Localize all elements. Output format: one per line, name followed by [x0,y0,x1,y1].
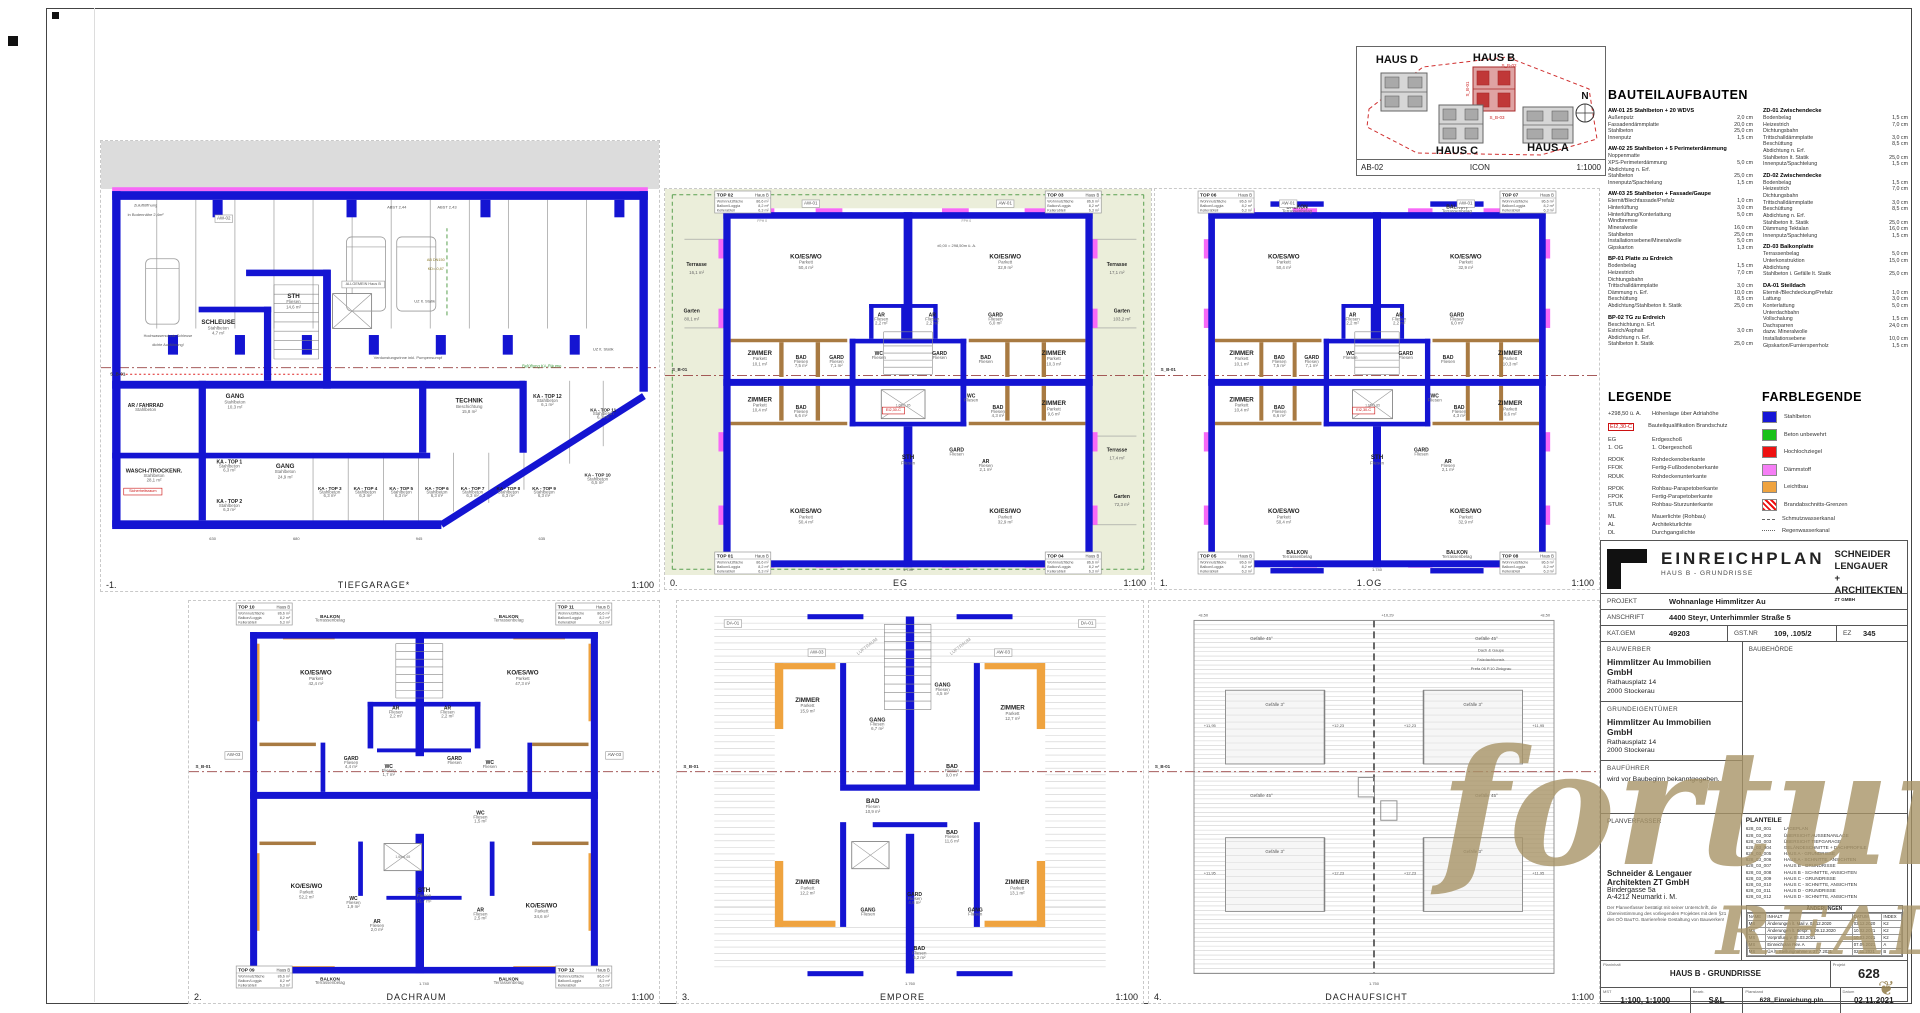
bauteil-section-BP-02: BP-02 TG zu ErdreichBeschichtung n. Erf.… [1608,315,1753,348]
plan-annotation: S_B-01 [1155,764,1171,769]
svg-text:Terrassenbelag: Terrassenbelag [1442,208,1473,213]
svg-text:4,4 m²: 4,4 m² [345,764,358,769]
plan-scale: 1:100 [631,992,654,1002]
legende-row: RDOKRohdeckenoberkante [1608,457,1758,463]
svg-text:6,3 m²: 6,3 m² [1242,208,1253,212]
svg-text:Terrassenbelag: Terrassenbelag [1282,208,1313,213]
plan-number: 0. [670,578,678,588]
svg-text:6,3 m²: 6,3 m² [324,493,337,498]
svg-text:86,6 m²: 86,6 m² [1541,200,1554,204]
svg-text:4,3 m²: 4,3 m² [1453,413,1466,418]
svg-text:50,4 m²: 50,4 m² [1276,520,1291,525]
svg-text:6,3 m²: 6,3 m² [1242,569,1253,573]
svg-text:Wohnnutzfläche: Wohnnutzfläche [1502,561,1528,565]
svg-text:2,0 m²: 2,0 m² [371,927,384,932]
svg-text:2,1 m²: 2,1 m² [1442,467,1455,472]
svg-text:Terrassenbelag: Terrassenbelag [1442,554,1473,559]
svg-text:6,0 m²: 6,0 m² [989,320,1002,325]
title-block: EINREICHPLAN HAUS B - GRUNDRISSE SCHNEID… [1600,540,1908,1002]
aenderung-row: MSEinreichplan Rev. A07.06.2021A [1747,941,1901,948]
legende-row: +298,50 ü. A.Höhenlage über Adriahöhe [1608,411,1758,417]
grundeigentuemer-name: Himmlitzer Au Immobilien GmbH [1607,717,1736,737]
plan-annotation: 1,65x1,85 [896,403,911,407]
svg-text:Balkon/Loggia: Balkon/Loggia [1047,204,1071,208]
dachraum-drawing: BALKONTerrassenbelagBALKONTerrassenbelag… [189,601,659,989]
plan-annotation: AW-03 [996,649,1010,654]
svg-text:TOP 09: TOP 09 [238,968,255,974]
svg-text:32,9 m²: 32,9 m² [998,265,1013,270]
plan-annotation: LUFTRAUM [856,637,879,656]
room-label: Garten [684,309,700,315]
svg-text:1,7 m²: 1,7 m² [383,772,396,777]
katgem-label: KAT.GEM [1601,630,1669,637]
svg-text:7,5 m²: 7,5 m² [1273,363,1286,368]
svg-text:52,2 m²: 52,2 m² [299,895,314,900]
planinhalt-row: Planinhalt HAUS B - GRUNDRISSE Projekt 6… [1601,961,1907,988]
plan-subtitle: HAUS B - GRUNDRISSE [1661,570,1825,577]
room-label: Terrasse [1107,447,1128,453]
plan-annotation: S_B-01 [195,764,211,769]
plan-name: EMPORE [880,992,925,1002]
plan-annotation: +11,95 [1532,871,1545,876]
baubehoerde-label: BAUBEHÖRDE [1749,646,1901,653]
svg-text:Fliesen: Fliesen [979,359,994,364]
aenderung-row: MSVorprüfung v. 03.03.202110.03.2021K2 [1747,934,1901,941]
svg-text:8,2 m²: 8,2 m² [1544,565,1555,569]
baufuehrer-text: wird vor Baubeginn bekanntgegeben. [1607,776,1736,785]
plan-annotation: ABST 2,43 [437,205,457,210]
svg-text:Terrassenbelag: Terrassenbelag [315,980,346,985]
svg-text:Haus B: Haus B [1086,193,1100,198]
plan-annotation: Gefälle 3° [1463,849,1483,854]
grundeigentuemer-label: GRUNDEIGENTÜMER [1607,706,1736,713]
plan-annotation: Dach & Gaupe [1478,647,1505,652]
plan-annotation: ALLGEMEIN Haus B [346,282,382,286]
svg-text:Stahlbeton: Stahlbeton [135,407,157,412]
farblegende-rows: StahlbetonBeton unbewehrtHochlochziegelD… [1762,411,1908,534]
firm-logo-icon [1607,549,1647,589]
svg-text:6,6 m²: 6,6 m² [1273,413,1286,418]
color-swatch-icon [1762,411,1777,423]
svg-text:Balkon/Loggia: Balkon/Loggia [238,616,262,620]
site-house-label: HAUS A [1527,142,1569,154]
svg-text:28,1 m²: 28,1 m² [147,477,162,482]
legende-row: FFOKFertig-Fußbodenoberkante [1608,465,1758,471]
plan-annotation: FPH 0 [757,219,767,223]
svg-text:Terrassenbelag: Terrassenbelag [315,618,346,623]
svg-text:80,1 m²: 80,1 m² [684,317,699,322]
svg-text:Wohnnutzfläche: Wohnnutzfläche [1200,561,1226,565]
svg-text:Kellerabteil: Kellerabteil [558,620,576,624]
legende-title: LEGENDE [1608,390,1758,404]
svg-text:17,1 m²: 17,1 m² [1110,270,1125,275]
plan-annotation: AW-01 [998,200,1012,205]
plan-scale: 1:100 [1571,992,1594,1002]
svg-text:72,3 m²: 72,3 m² [1114,502,1129,507]
planinhalt-label: Planinhalt [1603,962,1621,967]
plan-annotation: AW-01 [804,200,818,205]
plan-annotation: AW-01 [1281,200,1295,205]
massstab-value: 1:100, 1:1000 [1620,996,1670,1005]
svg-text:Haus B: Haus B [755,554,769,559]
watermark-ornament-icon: ❦ [1878,976,1895,1001]
svg-text:Terrassenbelag: Terrassenbelag [1282,554,1313,559]
svg-text:Fliesen: Fliesen [950,451,965,456]
color-swatch-icon [1762,446,1777,458]
svg-text:Balkon/Loggia: Balkon/Loggia [1502,204,1526,208]
plan-empore: 3. EMPORE 1:100 ZIMMERParkett15,9 m²GANG… [676,600,1144,1004]
svg-text:Balkon/Loggia: Balkon/Loggia [558,979,582,983]
svg-text:Kellerabteil: Kellerabteil [1200,208,1218,212]
massstab-label: MST [1603,989,1611,994]
site-plan-footer: AB-02 ICON 1:1000 [1357,159,1605,175]
svg-text:86,6 m²: 86,6 m² [1087,561,1100,565]
svg-text:6,3 m²: 6,3 m² [599,983,610,987]
plan-annotation: Verdunstungsrinne inkl. Pumpensumpf [374,355,443,360]
svg-text:6,3 m²: 6,3 m² [758,569,769,573]
svg-text:Haus B: Haus B [276,605,290,610]
plan-name: DACHAUFSICHT [1325,992,1408,1002]
svg-text:Wohnnutzfläche: Wohnnutzfläche [558,612,584,616]
site-plan-scale: 1:1000 [1577,163,1601,172]
plan-obergeschoss: 1. 1.OG 1:100 BALKONTerrassenbelagBALKON… [1154,188,1600,590]
svg-text:6,3 m²: 6,3 m² [1089,208,1100,212]
svg-text:Kellerabteil: Kellerabteil [238,620,256,624]
plan-sheet: -1. TIEFGARAGE* 1:100 SCHLEUSEStahlbeton… [0,0,1920,1013]
svg-text:6,3 m²: 6,3 m² [395,493,408,498]
plan-annotation: EI2,30-C [886,408,901,412]
plan-annotation: KD=-0,87 [428,267,444,271]
plan-annotation: +8,50 [1198,613,1209,618]
gstnr-value: 109, .105/2 [1774,629,1812,638]
bauteil-section-ZD-02: ZD-02 ZwischendeckeBodenbelag1,5 cmHeize… [1763,173,1908,239]
registration-mark [52,12,59,19]
svg-text:TOP 03: TOP 03 [1047,193,1064,199]
binding-margin-line [94,8,95,1002]
aenderungen-table: ÄNDERUNGEN NAMEINHALTDATUMINDEXMSÄnderun… [1746,905,1903,957]
farblegende-row: Regenwasserkanal [1762,528,1908,534]
svg-text:Fliesen: Fliesen [1428,397,1443,402]
site-plan-icon: HAUS DHAUS BHAUS CHAUS AS_B-02S_B-01S_B-… [1356,46,1606,176]
plan-scale: 1:100 [631,580,654,590]
plan-annotation: 1.740 [1372,567,1383,572]
svg-text:Wohnnutzfläche: Wohnnutzfläche [1047,200,1073,204]
svg-text:6,1 m²: 6,1 m² [541,402,554,407]
plan-title-row: 1. 1.OG 1:100 [1160,576,1594,589]
svg-text:42,4 m²: 42,4 m² [308,681,323,686]
anschrift-label: ANSCHRIFT [1601,614,1669,621]
farblegende: FARBLEGENDE StahlbetonBeton unbewehrtHoc… [1762,390,1908,539]
svg-text:8,2 m²: 8,2 m² [1089,565,1100,569]
plan-annotation: +8,50 [1540,613,1551,618]
svg-text:Fliesen: Fliesen [483,764,498,769]
plan-title-row: 3. EMPORE 1:100 [682,990,1138,1003]
bauwerber-address1: Rathausplatz 14 [1607,679,1736,688]
plan-scale: 1:100 [1571,578,1594,588]
plan-annotation: 1,65x1,85 [1365,403,1380,407]
svg-text:103,2 m²: 103,2 m² [1113,317,1131,322]
svg-text:86,6 m²: 86,6 m² [278,612,291,616]
svg-text:9,0 m²: 9,0 m² [946,773,959,778]
svg-text:Haus B: Haus B [755,193,769,198]
svg-text:TOP 07: TOP 07 [1502,193,1519,199]
plan-annotation: LUFTRAUM [949,637,972,656]
svg-text:32,9 m²: 32,9 m² [998,520,1013,525]
svg-text:Fliesen: Fliesen [968,911,983,916]
plan-annotation: 945 [416,536,423,541]
legende-row: ALArchitekturlichte [1608,522,1758,528]
svg-text:6,3 m²: 6,3 m² [223,468,236,473]
plan-scale: 1:100 [1115,992,1138,1002]
color-swatch-icon [1762,481,1777,493]
plan-annotation: Gefälle 3° [1265,849,1285,854]
svg-text:2,2 m²: 2,2 m² [875,320,888,325]
svg-text:8,2 m²: 8,2 m² [1242,204,1253,208]
svg-text:Kellerabteil: Kellerabteil [717,569,735,573]
svg-text:TOP 06: TOP 06 [1200,193,1217,199]
color-swatch-icon [1762,464,1777,476]
svg-text:TOP 04: TOP 04 [1047,554,1064,560]
svg-text:86,6 m²: 86,6 m² [597,612,610,616]
svg-text:6,6 m²: 6,6 m² [795,413,808,418]
svg-text:TOP 12: TOP 12 [558,968,575,974]
svg-text:Kellerabteil: Kellerabteil [1047,569,1065,573]
svg-text:Haus B: Haus B [596,968,610,973]
plan-annotation: Gefälle 3° [1463,702,1483,707]
site-plan-code: AB-02 [1361,163,1383,172]
plan-annotation: DA-01 [727,620,740,625]
svg-text:7,5 m²: 7,5 m² [795,363,808,368]
svg-text:Fliesen: Fliesen [861,911,876,916]
svg-text:Balkon/Loggia: Balkon/Loggia [717,204,741,208]
site-house-label: HAUS C [1436,145,1478,157]
svg-text:8,2 m²: 8,2 m² [280,616,291,620]
plan-annotation: AW-02 [217,215,231,220]
firm-name: SCHNEIDER LENGAUER + ARCHITEKTEN ZT GMBH [1835,549,1903,609]
anschrift-value: 4400 Steyr, Unterhimmler Straße 5 [1669,613,1791,622]
bearbeiter-label: Bearb. [1693,989,1705,994]
plan-annotation: ±0,00 = 298,50m ü. A. [937,243,976,248]
bauwerber-box: BAUWERBER Himmlitzer Au Immobilien GmbH … [1601,642,1742,702]
svg-text:9,6 m²: 9,6 m² [1504,412,1517,417]
legende-row: STUKRohbau-Sturzunterkante [1608,502,1758,508]
plan-annotation: +12,23 [1404,723,1417,728]
svg-text:9,6 m²: 9,6 m² [1048,412,1061,417]
svg-text:6,3 m²: 6,3 m² [466,493,479,498]
svg-text:Fliesen: Fliesen [933,355,948,360]
svg-text:8,2 m²: 8,2 m² [758,565,769,569]
aenderung-row: MSÜA lt. Stellungnahme v. 27.7.202102.11… [1747,948,1901,955]
svg-text:86,6 m²: 86,6 m² [1240,200,1253,204]
legende-row: EGErdgeschoß [1608,437,1758,443]
katgem-row: KAT.GEM 49203 GST.NR 109, .105/2 EZ 345 [1601,626,1907,642]
svg-text:32,9 m²: 32,9 m² [1458,520,1473,525]
plan-annotation: AW-03 [227,752,241,757]
plan-annotation: 680 [293,536,300,541]
svg-text:6,3 m²: 6,3 m² [502,493,515,498]
svg-text:Haus B: Haus B [276,968,290,973]
plan-dachraum: 2. DACHRAUM 1:100 BALKONTerrassenbelagBA… [188,600,660,1004]
farblegende-row: Hochlochziegel [1762,446,1908,458]
svg-text:34,6 m²: 34,6 m² [534,914,549,919]
svg-text:S_B-02: S_B-02 [1501,63,1517,68]
plan-annotation: 630 [209,536,216,541]
ez-value: 345 [1863,629,1876,638]
svg-text:10,3 m²: 10,3 m² [1503,361,1518,366]
color-swatch-icon [1762,519,1775,520]
plan-tiefgarage: -1. TIEFGARAGE* 1:100 SCHLEUSEStahlbeton… [100,140,660,592]
plan-name: TIEFGARAGE* [338,580,411,590]
svg-text:1,9 m²: 1,9 m² [347,904,360,909]
legende-rows: +298,50 ü. A.Höhenlage über AdriahöheEI2… [1608,411,1758,536]
svg-text:Fliesen: Fliesen [1399,355,1414,360]
bauteil-section-AW-02: AW-02 25 Stahlbeton + 5 Perimeterdämmung… [1608,146,1753,186]
svg-text:10,9 m²: 10,9 m² [865,809,880,814]
farblegende-title: FARBLEGENDE [1762,390,1908,404]
svg-text:Kellerabteil: Kellerabteil [1200,569,1218,573]
planteile-label: PLANTEILE [1746,817,1903,824]
svg-text:6,3 m²: 6,3 m² [1544,569,1555,573]
svg-text:Wohnnutzfläche: Wohnnutzfläche [1200,200,1226,204]
plan-annotation: EI2,30-C [1356,408,1371,412]
svg-text:50,4 m²: 50,4 m² [798,265,813,270]
plan-annotation: Prefa 06 P.10 Zinkgrau [1471,666,1512,671]
planteile-list: 628_03_001LAGEPLAN628_03_002ÜBERSICHT AU… [1746,826,1903,900]
plan-annotation: Gefälle 3° [1265,702,1285,707]
svg-text:Wohnnutzfläche: Wohnnutzfläche [1502,200,1528,204]
grundeigentuemer-address1: Rathausplatz 14 [1607,739,1736,748]
svg-text:8,2 m²: 8,2 m² [599,616,610,620]
bauteil-section-AW-01: AW-01 25 Stahlbeton + 20 WDVSAußenputz2,… [1608,108,1753,141]
svg-text:Balkon/Loggia: Balkon/Loggia [717,565,741,569]
svg-text:Wohnnutzfläche: Wohnnutzfläche [1047,561,1073,565]
svg-text:Kellerabteil: Kellerabteil [1047,208,1065,212]
svg-text:N: N [1581,91,1588,102]
plan-annotation: Belüftung KA-Räume [522,364,562,369]
bauteil-column: ZD-01 ZwischendeckeBodenbelag1,5 cmHeize… [1763,108,1908,354]
svg-text:15,8 m²: 15,8 m² [462,409,477,414]
svg-text:Fliesen: Fliesen [1370,460,1385,465]
svg-text:Wohnnutzfläche: Wohnnutzfläche [238,612,264,616]
svg-text:Kellerabteil: Kellerabteil [238,983,256,987]
svg-text:10,3 m²: 10,3 m² [227,405,242,410]
svg-text:4,7 m²: 4,7 m² [212,331,225,336]
svg-text:Balkon/Loggia: Balkon/Loggia [1200,565,1224,569]
plan-annotation: 1.740 [903,567,914,572]
svg-text:Kellerabteil: Kellerabteil [717,208,735,212]
plan-annotation: 1.740 [419,981,430,986]
color-swatch-icon [1762,530,1775,531]
svg-text:Haus B: Haus B [1238,193,1252,198]
ez-label: EZ [1837,630,1863,637]
plan-annotation: S_B-01 [110,372,126,377]
plan-annotation: +12,23 [1332,723,1345,728]
tiefgarage-drawing: SCHLEUSEStahlbeton4,7 m²STHFliesen14,6 m… [101,141,659,577]
svg-text:Kellerabteil: Kellerabteil [1502,208,1520,212]
registration-mark [8,36,18,46]
svg-text:TOP 10: TOP 10 [238,605,255,611]
svg-text:86,6 m²: 86,6 m² [1087,200,1100,204]
plan-title-row: 0. EG 1:100 [670,576,1146,589]
svg-text:4,6 m²: 4,6 m² [908,900,921,905]
svg-text:16,1 m²: 16,1 m² [689,270,704,275]
planverfasser-note: Der Planverfasser bestätigt mit seiner U… [1607,905,1735,923]
bauteilaufbauten-title: BAUTEILAUFBAUTEN [1608,88,1908,102]
svg-text:Terrassenbelag: Terrassenbelag [494,980,525,985]
projekt-value: Wohnanlage Himmlitzer Au [1669,597,1766,606]
legende-row: FPOKFertig-Parapetoberkante [1608,494,1758,500]
empore-drawing: ZIMMERParkett15,9 m²GANGFliesen6,7 m²GAN… [677,601,1143,989]
svg-text:Balkon/Loggia: Balkon/Loggia [238,979,262,983]
svg-text:8,2 m²: 8,2 m² [1242,565,1253,569]
planverfasser-address2: A-4212 Neumarkt i. M. [1607,894,1735,901]
svg-text:6,3 m²: 6,3 m² [597,415,610,420]
bauteil-section-ZD-01: ZD-01 ZwischendeckeBodenbelag1,5 cmHeize… [1763,108,1908,168]
svg-text:17,4 m²: 17,4 m² [1110,455,1125,460]
plan-annotation: AB DN150 [427,258,445,262]
bearbeiter-value: S&L [1709,996,1725,1005]
color-swatch-icon [1762,499,1777,511]
svg-text:Wohnnutzfläche: Wohnnutzfläche [238,975,264,979]
svg-text:86,6 m²: 86,6 m² [756,200,769,204]
svg-text:TOP 05: TOP 05 [1200,554,1217,560]
bauwerber-name: Himmlitzer Au Immobilien GmbH [1607,657,1736,677]
datum-label: Datum [1843,989,1855,994]
svg-text:12,7 m²: 12,7 m² [1005,716,1020,721]
farblegende-row: Stahlbeton [1762,411,1908,423]
plan-annotation: UZ lt. Statik [593,346,614,351]
room-label: Terrasse [1107,262,1128,268]
planteile-box: PLANTEILE 628_03_001LAGEPLAN628_03_002ÜB… [1742,814,1907,959]
plan-scale: 1:100 [1123,578,1146,588]
svg-text:6,2 m²: 6,2 m² [913,955,926,960]
katgem-value: 49203 [1669,629,1727,638]
svg-text:86,6 m²: 86,6 m² [1541,561,1554,565]
planteil-item: 628_03_012HAUS D - SCHNITTE, ANSICHTEN [1746,894,1903,900]
plan-annotation: dichte Ausführung! [152,343,183,347]
farblegende-row: Schmutzwasserkanal [1762,516,1908,522]
gstnr-label: GST.NR [1728,630,1774,637]
farblegende-row: Brandabschnitts-Grenzen [1762,499,1908,511]
plan-annotation: FPH 0 [962,219,972,223]
plan-title-row: -1. TIEFGARAGE* 1:100 [106,578,654,591]
plan-annotation: +11,95 [1204,723,1217,728]
plan-annotation: Hochwasserschutz Schleuse [144,334,193,338]
svg-text:Terrassenbelag: Terrassenbelag [494,618,525,623]
plan-annotation: Gefälle 45° [1250,636,1273,641]
site-house-label: HAUS D [1376,54,1418,66]
bauteil-column: AW-01 25 Stahlbeton + 20 WDVSAußenputz2,… [1608,108,1753,354]
aenderungen-title: ÄNDERUNGEN [1747,906,1902,913]
svg-text:86,6 m²: 86,6 m² [597,975,610,979]
svg-text:1,5 m²: 1,5 m² [474,818,487,823]
obergeschoss-drawing: BALKONTerrassenbelagBALKONTerrassenbelag… [1155,189,1599,575]
planstand-value: 628_Einreichung.pln [1760,997,1824,1004]
site-plan-drawing: HAUS DHAUS BHAUS CHAUS AS_B-02S_B-01S_B-… [1357,47,1603,158]
plan-type-title: EINREICHPLAN [1661,549,1825,569]
svg-text:Fliesen: Fliesen [1441,359,1456,364]
svg-text:Haus B: Haus B [1540,554,1554,559]
legende-row: EI2,30-CBauteilqualifikation Brandschutz [1608,423,1758,431]
svg-text:Haus B: Haus B [1238,554,1252,559]
aenderung-row: MSÄnderungen lt. Bespr. v. 09.12.202010.… [1747,927,1901,934]
svg-text:16,7 m²: 16,7 m² [417,898,432,903]
site-plan-name: ICON [1470,163,1490,172]
farblegende-row: Leichtbau [1762,481,1908,493]
svg-text:11,6 m²: 11,6 m² [945,839,960,844]
svg-text:32,9 m²: 32,9 m² [1458,265,1473,270]
svg-text:Wohnnutzfläche: Wohnnutzfläche [717,200,743,204]
